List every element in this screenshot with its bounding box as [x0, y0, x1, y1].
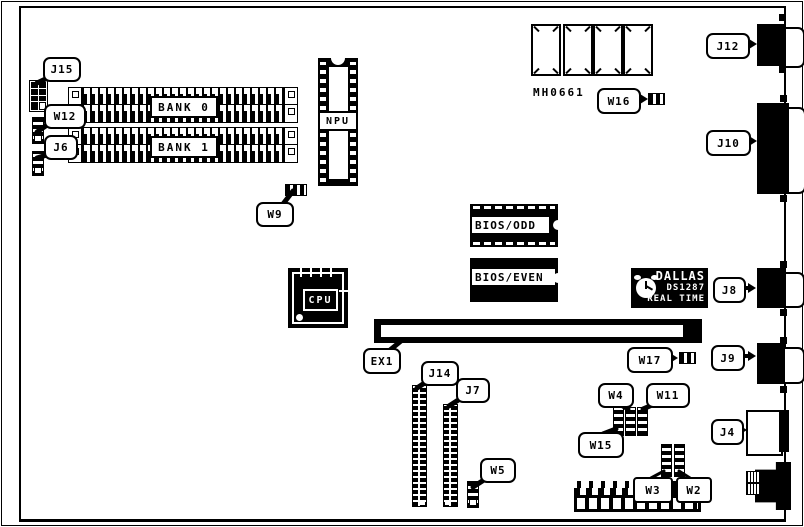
j8-shell: [784, 272, 804, 308]
header-j14: [412, 385, 427, 507]
callout-w12: W12: [44, 104, 86, 129]
edge-tab: [780, 95, 787, 102]
callout-j12: J12: [706, 33, 750, 59]
edge-tab: [780, 337, 787, 344]
jumper-w5: [467, 481, 479, 508]
pin: [39, 89, 46, 95]
npu-window-top: [329, 67, 348, 111]
dallas-label: DALLAS: [647, 270, 705, 283]
jumper-w16: [648, 93, 665, 105]
jumper-open-pin: [34, 167, 42, 174]
keyboard-connector-pin: [746, 483, 760, 495]
header-j7: [443, 404, 458, 507]
callout-j10: J10: [706, 130, 751, 156]
j9-shell: [783, 347, 804, 384]
callout-j7: J7: [456, 378, 490, 403]
cpu-label: CPU: [303, 289, 338, 311]
callout-w15: W15: [578, 432, 624, 458]
callout-w3: W3: [633, 477, 673, 503]
connector-j10: [757, 103, 789, 194]
callout-w5: W5: [480, 458, 516, 483]
simm-latch: [284, 105, 297, 122]
simm-latch: [284, 88, 297, 105]
npu-label: NPU: [319, 112, 357, 130]
keyboard-connector-pin: [746, 471, 760, 483]
callout-w16: W16: [597, 88, 641, 114]
jumper-w9: [285, 184, 307, 196]
callout-j6: J6: [44, 135, 78, 160]
motherboard-diagram: J15 W12 J6 BANK 0 BANK 1 NPU W9 MH0661 W…: [0, 0, 804, 527]
callout-w17: W17: [627, 347, 673, 373]
connector-j4: [746, 410, 783, 456]
ex1-slot-opening: [381, 325, 683, 337]
callout-w9: W9: [256, 202, 294, 227]
cpu-pin1-dot: [296, 314, 303, 321]
jumper-w2: [674, 444, 685, 477]
callout-w11: W11: [646, 383, 690, 408]
j12-shell: [784, 27, 804, 68]
jumper-j6: [32, 151, 44, 176]
bank1-label: BANK 1: [150, 136, 218, 158]
callout-j9: J9: [711, 345, 745, 371]
cpu-chip: CPU: [288, 268, 348, 328]
bios-odd-chip: BIOS/ODD: [470, 204, 558, 247]
callout-j14: J14: [421, 361, 459, 386]
bios-even-chip: BIOS/EVEN: [470, 258, 558, 302]
simm-latch: [284, 145, 297, 162]
jumper-w11: [637, 407, 648, 436]
chip-mh0661-2: [563, 24, 593, 76]
pin: [31, 102, 38, 110]
chip-mh0661-3: [593, 24, 623, 76]
callout-w4: W4: [598, 383, 634, 408]
callout-j8: J8: [713, 277, 746, 303]
pin: [31, 82, 38, 88]
connector-j4-edge: [779, 410, 789, 452]
jumper-w17: [679, 352, 696, 364]
pin: [31, 96, 38, 102]
bios-odd-label: BIOS/ODD: [472, 217, 549, 233]
jumper-w3: [661, 444, 672, 477]
chip-mh0661-4: [623, 24, 653, 76]
edge-tab: [780, 309, 787, 316]
bank0-label: BANK 0: [150, 96, 218, 118]
mh0661-label: MH0661: [533, 86, 585, 99]
edge-tab: [779, 66, 786, 73]
pin: [31, 89, 38, 95]
jumper-open-pin: [469, 499, 477, 506]
connector-j9: [757, 343, 785, 384]
callout-j15: J15: [43, 57, 81, 82]
jumper-w12: [32, 117, 44, 144]
npu-window-bottom: [329, 131, 348, 179]
npu-notch: [331, 58, 345, 65]
jumper-w4: [625, 407, 636, 436]
ex1-slot: [374, 319, 702, 343]
connector-j8: [757, 268, 786, 308]
callout-ex1: EX1: [363, 348, 401, 374]
edge-tab: [780, 386, 787, 393]
npu-chip: NPU: [318, 58, 358, 186]
j10-shell: [787, 107, 804, 194]
simm-latch: [69, 88, 82, 105]
edge-tab: [779, 14, 786, 21]
realtime-label: REAL TIME: [647, 294, 705, 305]
edge-tab: [780, 195, 787, 202]
bios-odd-notch: [553, 220, 558, 230]
ds1287-label: DS1287: [647, 283, 705, 294]
pin: [39, 96, 46, 102]
bios-even-label: BIOS/EVEN: [472, 269, 555, 285]
edge-tab: [780, 261, 787, 268]
pin: [39, 82, 46, 88]
callout-w2: W2: [676, 477, 712, 503]
simm-latch: [284, 128, 297, 145]
jumper-open-pin: [34, 135, 42, 142]
callout-j4: J4: [711, 419, 744, 445]
dallas-rtc-chip: DALLAS DS1287 REAL TIME: [631, 268, 708, 308]
chip-mh0661-1: [531, 24, 561, 76]
connector-j12: [757, 24, 786, 66]
